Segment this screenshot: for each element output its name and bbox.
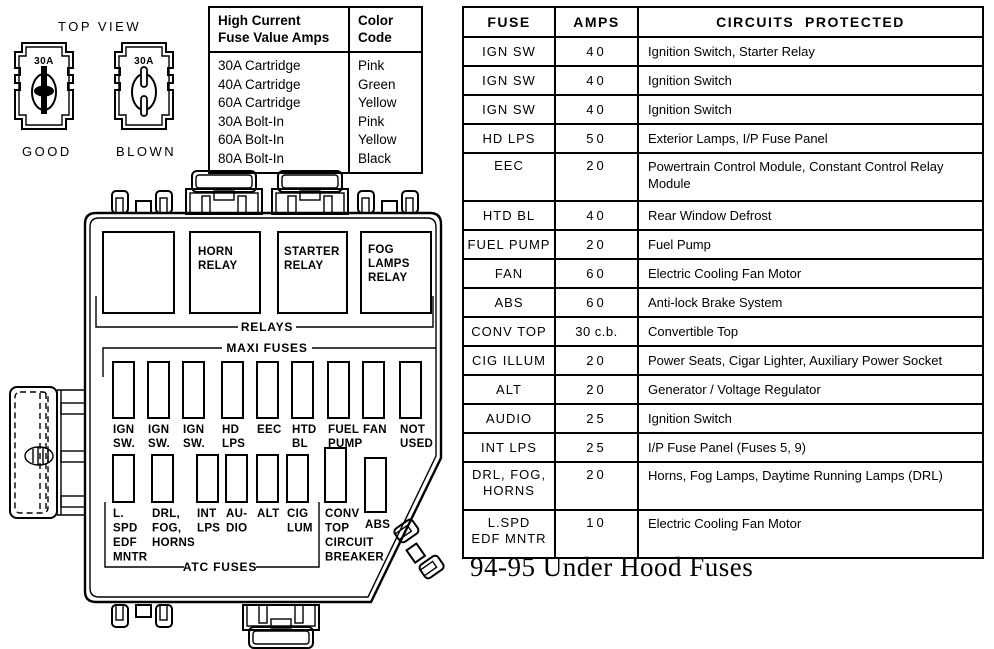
good-label: GOOD	[22, 144, 72, 159]
corner-connector	[393, 518, 445, 580]
table-row: CONV TOP30 c.b.Convertible Top	[463, 317, 983, 346]
good-fuse-glyph: 30A	[15, 43, 73, 129]
svg-text:IGN: IGN	[148, 424, 169, 436]
legend-header-row: High Current Fuse Value Amps Color Code	[210, 8, 421, 53]
left-side-connector	[10, 387, 85, 518]
svg-text:CONV: CONV	[325, 508, 359, 520]
horn-relay-label: HORN	[198, 246, 233, 258]
table-header-row: FUSE AMPS CIRCUITS PROTECTED	[463, 7, 983, 37]
table-row: AUDIO25Ignition Switch	[463, 404, 983, 433]
svg-text:SW.: SW.	[113, 438, 135, 450]
svg-text:SPD: SPD	[113, 523, 138, 535]
svg-text:ABS: ABS	[365, 519, 390, 531]
fuse-diagram-page: TOP VIEW 30A GOOD 30A BLOWN High Current…	[0, 0, 994, 649]
amps-header: AMPS	[555, 7, 638, 37]
svg-text:FOG,: FOG,	[152, 523, 181, 535]
top-tab-connector-left	[112, 191, 172, 213]
svg-text:CIRCUIT: CIRCUIT	[325, 537, 374, 549]
table-row: IGN SW40Ignition Switch	[463, 95, 983, 124]
blown-fuse-glyph: 30A	[115, 43, 173, 129]
table-row: IGN SW40Ignition Switch	[463, 66, 983, 95]
table-row: EEC20Powertrain Control Module, Constant…	[463, 153, 983, 201]
top-connector-2	[272, 171, 348, 214]
svg-text:SW.: SW.	[148, 438, 170, 450]
legend-body: 30A Cartridge 40A Cartridge 60A Cartridg…	[210, 53, 421, 172]
good-fuse-amps: 30A	[34, 56, 54, 67]
legend-header-color: Color Code	[348, 8, 421, 51]
legend-color-values: Pink Green Yellow Pink Yellow Black	[348, 53, 421, 172]
svg-text:NOT: NOT	[400, 424, 425, 436]
page-title: 94-95 Under Hood Fuses	[470, 552, 753, 583]
svg-text:SW.: SW.	[183, 438, 205, 450]
svg-text:DIO: DIO	[226, 523, 247, 535]
fuse-box-drawing: HORN RELAY STARTER RELAY FOG LAMPS RELAY…	[0, 160, 462, 649]
blown-label: BLOWN	[116, 144, 176, 159]
table-row: CIG ILLUM20Power Seats, Cigar Lighter, A…	[463, 346, 983, 375]
maxi-fuse-slots	[113, 362, 421, 418]
table-row: DRL, FOG, HORNS20Horns, Fog Lamps, Dayti…	[463, 462, 983, 510]
fuse-header: FUSE	[463, 7, 555, 37]
svg-text:FUEL: FUEL	[328, 424, 359, 436]
relays-bracket-label: RELAYS	[241, 320, 293, 334]
svg-text:RELAY: RELAY	[284, 260, 323, 272]
table-row: L.SPD EDF MNTR10Electric Cooling Fan Mot…	[463, 510, 983, 558]
fog-relay-label: FOG	[368, 244, 394, 256]
table-row: ALT20Generator / Voltage Regulator	[463, 375, 983, 404]
relay-slot-starter	[278, 232, 347, 313]
svg-text:RELAY: RELAY	[198, 260, 237, 272]
svg-text:IGN: IGN	[113, 424, 134, 436]
svg-text:USED: USED	[400, 438, 433, 450]
top-view-label: TOP VIEW	[58, 19, 141, 34]
svg-text:MNTR: MNTR	[113, 552, 148, 564]
svg-text:EDF: EDF	[113, 537, 137, 549]
atc-fuses-bracket-label: ATC FUSES	[183, 560, 257, 574]
legend-header-fuse: High Current Fuse Value Amps	[210, 8, 348, 51]
top-connector-1	[186, 171, 262, 214]
table-row: FUEL PUMP20Fuel Pump	[463, 230, 983, 259]
svg-text:HD: HD	[222, 424, 239, 436]
bottom-tab-connector	[112, 605, 172, 627]
bottom-connector	[243, 605, 319, 648]
top-tab-connector-right	[358, 191, 418, 213]
table-row: ABS60Anti-lock Brake System	[463, 288, 983, 317]
svg-text:HORNS: HORNS	[152, 537, 195, 549]
top-view-section: TOP VIEW 30A GOOD 30A BLOWN	[0, 0, 205, 165]
table-row: INT LPS25I/P Fuse Panel (Fuses 5, 9)	[463, 433, 983, 462]
svg-text:RELAY: RELAY	[368, 272, 407, 284]
svg-text:DRL,: DRL,	[152, 508, 180, 520]
svg-text:HTD: HTD	[292, 424, 317, 436]
atc-fuse-labels: L.SPDEDFMNTR DRL,FOG,HORNS INTLPS AU-DIO…	[113, 508, 390, 564]
svg-text:LPS: LPS	[197, 523, 220, 535]
svg-text:LPS: LPS	[222, 438, 245, 450]
table-row: HD LPS50Exterior Lamps, I/P Fuse Panel	[463, 124, 983, 153]
color-code-legend: High Current Fuse Value Amps Color Code …	[208, 6, 423, 174]
blown-filament-bottom	[141, 96, 147, 116]
svg-text:INT: INT	[197, 508, 216, 520]
svg-text:BL: BL	[292, 438, 308, 450]
circuits-table: FUSE AMPS CIRCUITS PROTECTED IGN SW40Ign…	[462, 6, 984, 559]
svg-text:CIG: CIG	[287, 508, 308, 520]
svg-text:EEC: EEC	[257, 424, 282, 436]
legend-fuse-values: 30A Cartridge 40A Cartridge 60A Cartridg…	[210, 53, 348, 172]
table-row: IGN SW40Ignition Switch, Starter Relay	[463, 37, 983, 66]
blown-filament-top	[141, 67, 147, 87]
maxi-fuses-bracket-label: MAXI FUSES	[226, 341, 307, 355]
svg-text:BREAKER: BREAKER	[325, 552, 384, 564]
svg-text:AU-: AU-	[226, 508, 247, 520]
svg-text:TOP: TOP	[325, 523, 349, 535]
relay-slot-horn	[190, 232, 260, 313]
circuits-header: CIRCUITS PROTECTED	[638, 7, 983, 37]
relay-slot-empty	[103, 232, 174, 313]
maxi-fuse-labels: IGNSW. IGNSW. IGNSW. HDLPS EEC HTDBL FUE…	[113, 424, 433, 450]
starter-relay-label: STARTER	[284, 246, 340, 258]
atc-fuse-slots	[113, 448, 386, 512]
table-row: HTD BL40Rear Window Defrost	[463, 201, 983, 230]
svg-text:IGN: IGN	[183, 424, 204, 436]
svg-text:LAMPS: LAMPS	[368, 258, 410, 270]
blown-fuse-amps: 30A	[134, 56, 154, 67]
svg-text:ALT: ALT	[257, 508, 279, 520]
svg-text:L.: L.	[113, 508, 124, 520]
table-row: FAN60Electric Cooling Fan Motor	[463, 259, 983, 288]
svg-text:FAN: FAN	[363, 424, 387, 436]
svg-text:LUM: LUM	[287, 523, 313, 535]
